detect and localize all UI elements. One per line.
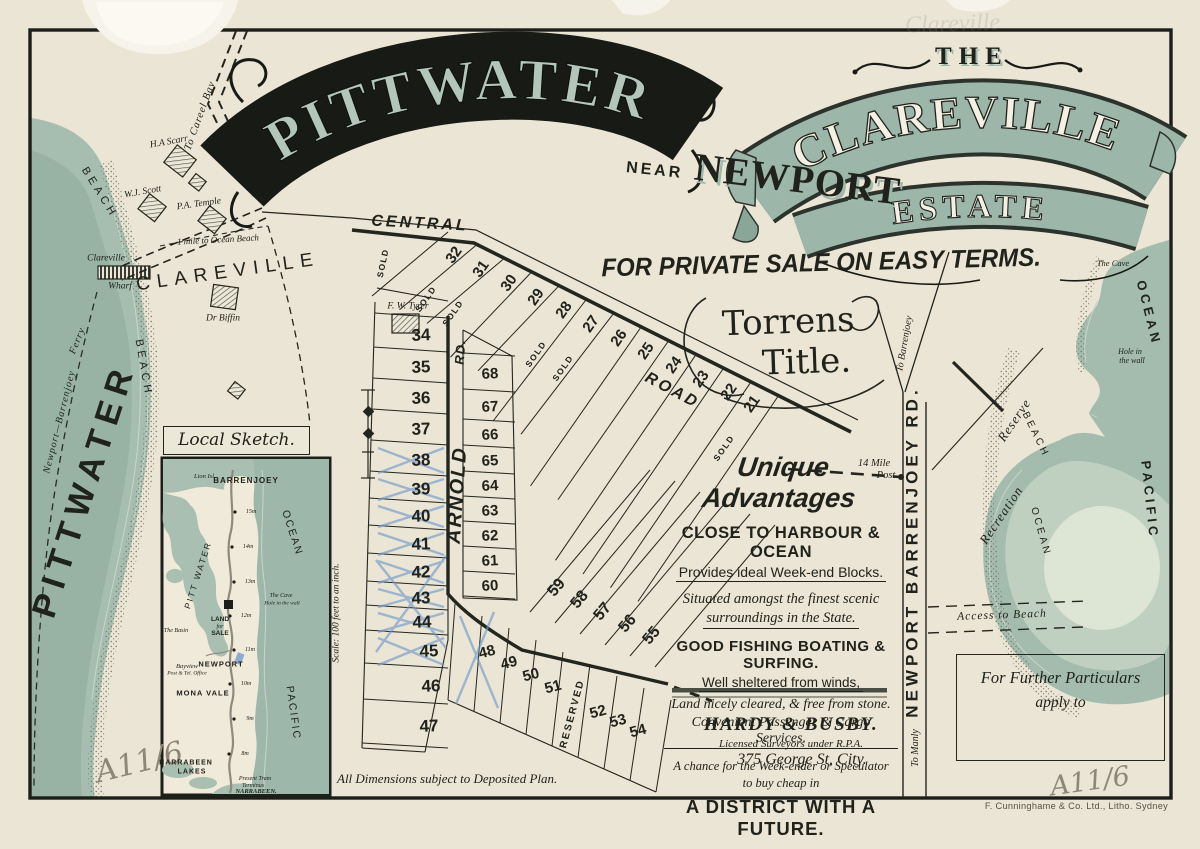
pittwater-water [31, 118, 152, 797]
estate-map-poster: PITTWATER CLAREVILLE ESTATE Clareville N… [0, 0, 1200, 849]
inset-map [162, 458, 330, 795]
advantages-rule [672, 688, 887, 697]
title-banner: PITTWATER [231, 46, 714, 226]
inset-land-for-sale-marker [224, 600, 233, 609]
torrens-flourish [684, 297, 884, 408]
scale-bar [361, 390, 375, 478]
mile-post-marker [898, 474, 904, 480]
pacific-ocean [983, 240, 1171, 712]
subdivision-grid [362, 288, 656, 792]
central-road [352, 230, 851, 432]
map-art: PITTWATER CLAREVILLE ESTATE [0, 0, 1200, 849]
sold-cross-marks [376, 448, 498, 708]
clareville-ribbon: CLAREVILLE ESTATE [727, 60, 1176, 284]
svg-text:PITTWATER: PITTWATER [254, 46, 661, 173]
wharf-jetty [98, 266, 150, 279]
title-pittwater: PITTWATER [254, 46, 661, 173]
